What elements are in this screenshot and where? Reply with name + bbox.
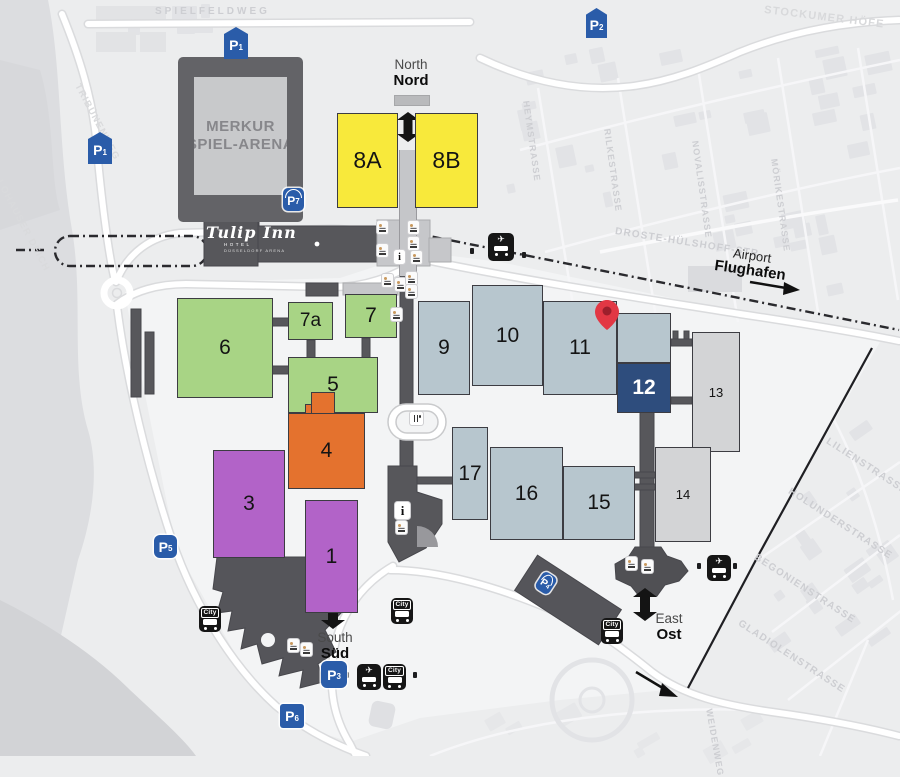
stop-marker <box>413 672 417 678</box>
residential-block <box>852 82 877 98</box>
escalator-icon <box>391 308 402 321</box>
hall-7[interactable]: 7 <box>345 294 397 338</box>
hall-9[interactable]: 9 <box>418 301 470 395</box>
arena-name-line2: SPIEL-ARENA <box>194 136 287 154</box>
residential-block <box>847 141 870 159</box>
residential-block <box>662 152 679 170</box>
hall-12[interactable]: 12 <box>617 363 671 413</box>
hall-4-annex <box>311 392 335 414</box>
residential-block <box>818 234 838 255</box>
bus-face <box>361 677 377 688</box>
hall-6[interactable]: 6 <box>177 298 273 398</box>
residential-block <box>484 711 506 731</box>
residential-block <box>738 69 752 80</box>
residential-block <box>808 76 825 95</box>
hall-7a[interactable]: 7a <box>288 302 333 340</box>
residential-block <box>859 112 876 130</box>
residential-block <box>740 710 764 731</box>
escalator-icon <box>411 251 422 264</box>
residential-block <box>698 110 711 121</box>
hotel-subtitle: HOTEL <box>224 243 252 248</box>
residential-block <box>864 51 893 76</box>
hall-11-annex <box>617 313 671 363</box>
residential-block <box>177 17 195 34</box>
residential-block <box>793 223 812 239</box>
residential-block <box>815 214 829 236</box>
residential-block <box>724 214 736 224</box>
airport-shuttle-icon[interactable]: ✈ <box>357 664 381 690</box>
hall-3[interactable]: 3 <box>213 450 285 558</box>
escalator-icon <box>406 285 417 298</box>
residential-block <box>844 556 872 583</box>
residential-block <box>128 19 140 35</box>
residential-block <box>673 112 697 127</box>
hotel-name: Tulip Inn <box>206 225 297 241</box>
escalator-icon <box>642 560 653 573</box>
residential-block <box>867 575 884 590</box>
bus-face <box>202 619 218 630</box>
city-bus-icon[interactable]: City <box>601 618 623 644</box>
hall-13[interactable]: 13 <box>692 332 740 452</box>
residential-block <box>867 627 891 647</box>
residential-block <box>565 53 579 65</box>
bus-face <box>711 568 727 579</box>
escalator-icon <box>395 278 406 291</box>
residential-block <box>826 283 844 297</box>
escalator-icon <box>408 237 419 250</box>
residential-block <box>812 108 837 125</box>
east-entrance-label: East Ost <box>643 612 695 643</box>
escalator-icon <box>377 221 388 234</box>
bus-face <box>387 677 403 688</box>
north-entrance-label: North Nord <box>384 58 438 89</box>
escalator-icon <box>626 557 637 570</box>
residential-block <box>723 191 750 213</box>
residential-block <box>629 80 647 91</box>
hall-16[interactable]: 16 <box>490 447 563 540</box>
hall-8A[interactable]: 8A <box>337 113 398 208</box>
residential-block <box>506 184 516 195</box>
residential-block <box>818 92 841 110</box>
city-bus-icon[interactable]: City <box>391 598 413 624</box>
street-label: SPIELFELDWEG <box>155 6 270 17</box>
north-platform <box>394 95 430 106</box>
hall-14[interactable]: 14 <box>655 447 711 542</box>
residential-block <box>505 721 523 736</box>
stop-marker <box>522 252 526 258</box>
residential-block <box>846 487 860 501</box>
city-bus-icon[interactable]: City <box>383 664 406 690</box>
hall-15[interactable]: 15 <box>563 466 635 540</box>
residential-block <box>848 420 873 442</box>
airport-shuttle-icon[interactable]: ✈ <box>707 555 731 581</box>
south-entrance-label: South Süd <box>307 631 363 662</box>
residential-block <box>525 69 545 86</box>
escalator-icon <box>396 521 407 534</box>
parking-icon-p7[interactable]: P7 <box>283 188 304 211</box>
hall-4[interactable]: 4 <box>288 413 365 489</box>
residential-block <box>822 56 848 81</box>
hall-1[interactable]: 1 <box>305 500 358 613</box>
tulip-inn-hotel-logo[interactable]: Tulip Inn HOTEL DÜSSELDORF ARENA <box>206 225 346 263</box>
parking-icon-p6[interactable]: P6 <box>280 704 304 728</box>
escalator-icon <box>408 221 419 234</box>
city-bus-icon[interactable]: City <box>199 606 221 632</box>
info-icon[interactable]: i <box>395 502 410 519</box>
bus-face <box>394 611 410 622</box>
escalator-icon <box>377 244 388 257</box>
parking-icon-p3[interactable]: P3 <box>321 661 347 688</box>
residential-block <box>633 747 645 759</box>
stop-marker <box>733 563 737 569</box>
escalator-icon <box>288 639 299 652</box>
info-icon[interactable]: i <box>394 250 405 264</box>
residential-block <box>597 62 618 83</box>
residential-block <box>732 737 752 753</box>
airport-shuttle-icon[interactable]: ✈ <box>488 233 514 261</box>
arena-name-line1: MERKUR <box>206 118 275 136</box>
hall-8B[interactable]: 8B <box>415 113 478 208</box>
hall-17[interactable]: 17 <box>452 427 488 520</box>
residential-block <box>585 164 596 173</box>
residential-block <box>659 49 683 66</box>
restaurant-icon <box>410 412 423 425</box>
residential-block <box>745 112 770 136</box>
hotel-subtitle2: DÜSSELDORF ARENA <box>224 249 285 253</box>
residential-block <box>773 589 786 602</box>
hall-10[interactable]: 10 <box>472 285 543 386</box>
bus-face <box>604 631 620 642</box>
residential-block <box>555 145 577 169</box>
stop-marker <box>697 563 701 569</box>
stop-marker <box>470 248 474 254</box>
hall-4-annex-small <box>305 404 312 414</box>
bus-face <box>493 246 509 257</box>
residential-block <box>814 45 839 58</box>
residential-block <box>554 702 583 728</box>
residential-block <box>589 47 606 64</box>
escalator-icon <box>406 272 417 285</box>
location-pin-icon[interactable] <box>594 299 620 336</box>
escalator-icon <box>382 274 393 287</box>
parking-icon-p5[interactable]: P5 <box>154 535 177 558</box>
residential-block <box>734 220 754 237</box>
